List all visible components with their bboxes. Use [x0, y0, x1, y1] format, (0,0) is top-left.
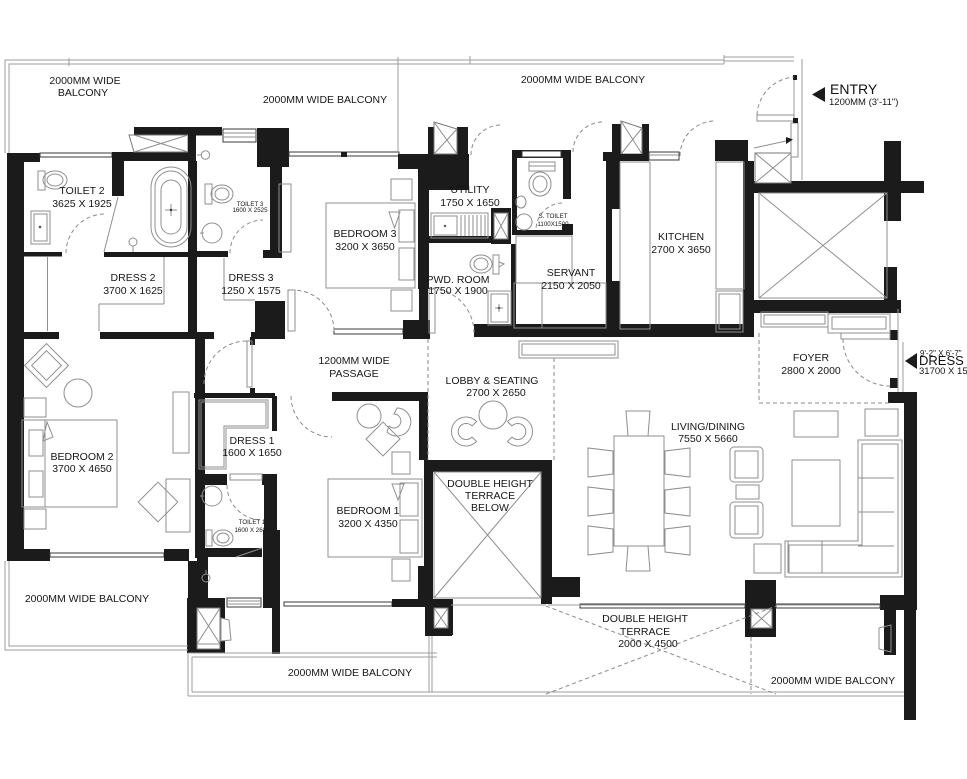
- svg-text:2000MM WIDE BALCONY: 2000MM WIDE BALCONY: [521, 74, 645, 86]
- svg-text:LOBBY & SEATING: LOBBY & SEATING: [446, 375, 539, 387]
- svg-text:3200 X 4350: 3200 X 4350: [338, 518, 398, 530]
- svg-text:DRESS 2: DRESS 2: [111, 272, 156, 284]
- svg-text:3700 X 4650: 3700 X 4650: [52, 463, 112, 475]
- svg-text:7550 X 5660: 7550 X 5660: [678, 433, 738, 445]
- svg-text:TOILET 1: TOILET 1: [239, 519, 266, 526]
- svg-text:BALCONY: BALCONY: [58, 87, 108, 99]
- svg-text:PASSAGE: PASSAGE: [329, 368, 378, 380]
- svg-text:FOYER: FOYER: [793, 352, 830, 364]
- svg-text:2000MM WIDE BALCONY: 2000MM WIDE BALCONY: [771, 675, 895, 687]
- svg-text:1200MM WIDE: 1200MM WIDE: [318, 355, 389, 367]
- svg-text:2700 X 3650: 2700 X 3650: [651, 244, 711, 256]
- svg-text:TERRACE: TERRACE: [465, 490, 515, 502]
- svg-text:1600 X 2525: 1600 X 2525: [232, 207, 268, 214]
- svg-text:DRESS 3: DRESS 3: [229, 272, 274, 284]
- svg-text:S. TOILET: S. TOILET: [538, 213, 567, 220]
- svg-text:1600 X 2600: 1600 X 2600: [234, 527, 270, 534]
- svg-text:1100X1500: 1100X1500: [537, 221, 569, 228]
- svg-text:2000MM WIDE BALCONY: 2000MM WIDE BALCONY: [25, 593, 149, 605]
- svg-text:KITCHEN: KITCHEN: [658, 231, 704, 243]
- svg-text:TOILET 2: TOILET 2: [59, 185, 104, 197]
- svg-text:BEDROOM 2: BEDROOM 2: [50, 451, 113, 463]
- svg-text:2000 X 4500: 2000 X 4500: [618, 638, 678, 650]
- svg-text:DRESS 1: DRESS 1: [230, 435, 275, 447]
- svg-text:ENTRY: ENTRY: [830, 81, 878, 97]
- svg-text:2150 X 2050: 2150 X 2050: [541, 280, 601, 292]
- svg-text:1200MM (3'-11"): 1200MM (3'-11"): [829, 97, 898, 108]
- svg-text:TERRACE: TERRACE: [620, 626, 670, 638]
- svg-text:2700 X 2650: 2700 X 2650: [466, 387, 526, 399]
- svg-text:SERVANT: SERVANT: [547, 267, 596, 279]
- svg-text:3200 X 3650: 3200 X 3650: [335, 241, 395, 253]
- svg-text:DOUBLE HEIGHT: DOUBLE HEIGHT: [602, 613, 688, 625]
- svg-text:3625 X 1925: 3625 X 1925: [52, 198, 112, 210]
- svg-text:31700 X 1575: 31700 X 1575: [919, 366, 967, 377]
- svg-text:UTILITY: UTILITY: [450, 184, 489, 196]
- svg-text:1600 X 1650: 1600 X 1650: [222, 447, 282, 459]
- svg-text:2000MM WIDE BALCONY: 2000MM WIDE BALCONY: [263, 94, 387, 106]
- svg-text:BEDROOM 3: BEDROOM 3: [333, 228, 396, 240]
- svg-text:2000MM WIDE BALCONY: 2000MM WIDE BALCONY: [288, 667, 412, 679]
- svg-text:DOUBLE HEIGHT: DOUBLE HEIGHT: [447, 478, 533, 490]
- svg-text:BELOW: BELOW: [471, 502, 509, 514]
- svg-text:3700 X 1625: 3700 X 1625: [103, 285, 163, 297]
- svg-text:1250 X 1575: 1250 X 1575: [221, 285, 281, 297]
- svg-text:BEDROOM 1: BEDROOM 1: [336, 505, 399, 517]
- svg-text:LIVING/DINING: LIVING/DINING: [671, 421, 745, 433]
- svg-text:2000MM WIDE: 2000MM WIDE: [49, 75, 120, 87]
- svg-text:1750 X 1650: 1750 X 1650: [440, 197, 500, 209]
- svg-text:2800 X 2000: 2800 X 2000: [781, 365, 841, 377]
- svg-text:1750 X 1900: 1750 X 1900: [428, 285, 488, 297]
